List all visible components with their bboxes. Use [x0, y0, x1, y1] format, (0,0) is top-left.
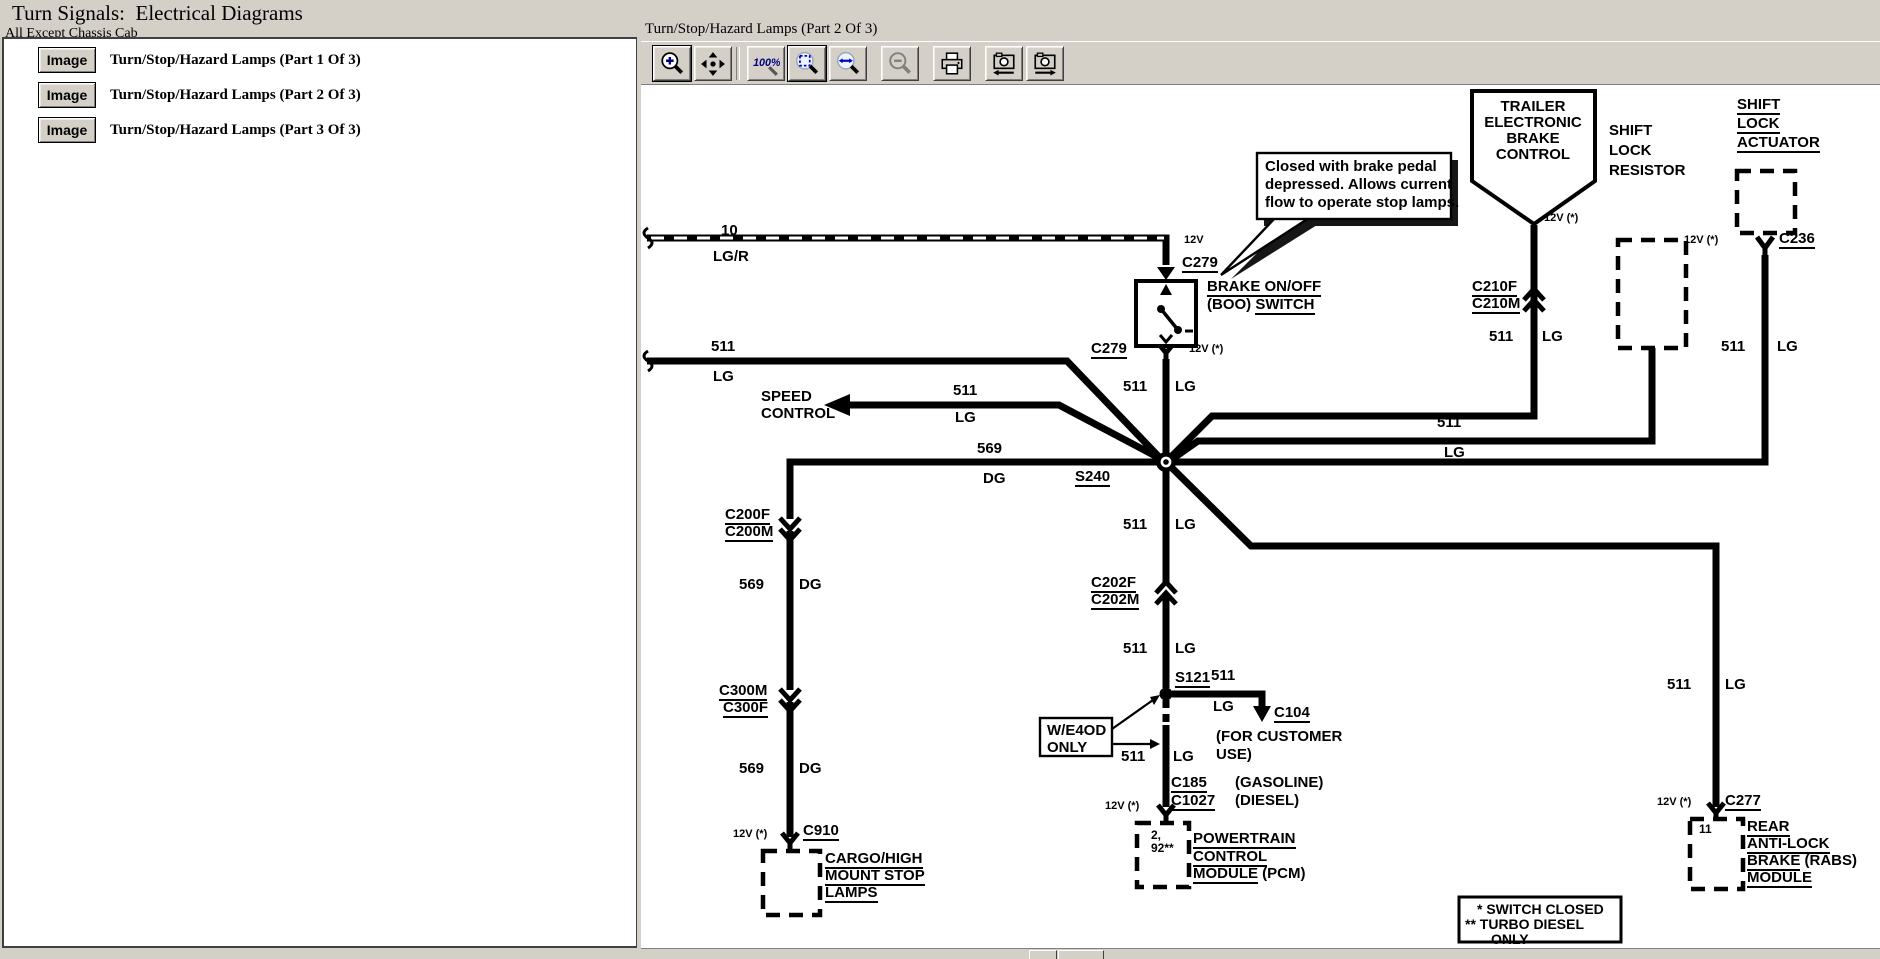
zoom-width-button[interactable]	[829, 46, 867, 81]
diagram-label: MOUNT STOP	[825, 868, 925, 884]
bottom-scrollbar[interactable]	[641, 948, 1880, 959]
diagram-label: C279	[1091, 341, 1127, 357]
diagram-label: 11	[1699, 823, 1712, 836]
diagram-label: LG	[1444, 445, 1465, 461]
diagram-label: S121	[1175, 670, 1210, 686]
camera-next-icon	[1032, 51, 1058, 77]
diagram-label: C200F	[725, 507, 770, 523]
zoom-out-icon	[887, 51, 913, 77]
diagram-label: MODULE	[1747, 870, 1812, 886]
diagram-label: 511	[1123, 517, 1147, 533]
diagram-label: LOCK	[1609, 143, 1652, 159]
diagram-label: USE)	[1216, 747, 1252, 763]
image-label-1: Turn/Stop/Hazard Lamps (Part 1 Of 3)	[110, 52, 361, 69]
viewer-toolbar: 100%	[641, 41, 1880, 85]
diagram-label: POWERTRAIN	[1193, 831, 1296, 847]
diagram-label: C200M	[725, 524, 773, 540]
diagram-label: LAMPS	[825, 885, 878, 901]
zoom-fit-icon	[794, 51, 820, 77]
diagram-label: RESISTOR	[1609, 163, 1685, 179]
diagram-label: CONTROL	[1193, 849, 1267, 865]
image-button-1[interactable]: Image	[38, 47, 96, 73]
diagram-label: REAR	[1747, 819, 1790, 835]
pan-icon	[700, 51, 726, 77]
diagram-label: 511	[1211, 668, 1235, 684]
page-title: Turn Signals: Electrical Diagrams	[12, 1, 303, 26]
diagram-label: CONTROL	[1496, 147, 1570, 163]
diagram-label: MODULE (PCM)	[1193, 866, 1306, 882]
diagram-label: 511	[711, 339, 735, 355]
diagram-label: SHIFT	[1737, 97, 1780, 113]
image-button-2[interactable]: Image	[38, 82, 96, 108]
diagram-label: LG	[1173, 749, 1194, 765]
diagram-label: C202M	[1091, 592, 1139, 608]
diagram-label: 12V (*)	[1684, 235, 1718, 247]
diagram-label: ANTI-LOCK	[1747, 836, 1830, 852]
diagram-label: 92**	[1151, 842, 1174, 855]
image-label-2: Turn/Stop/Hazard Lamps (Part 2 Of 3)	[110, 87, 361, 104]
diagram-label: C202F	[1091, 575, 1136, 591]
diagram-label: CARGO/HIGH	[825, 851, 923, 867]
zoom-width-icon	[835, 51, 861, 77]
zoom-100-button[interactable]: 100%	[747, 46, 785, 81]
diagram-label: ONLY	[1491, 932, 1529, 947]
diagram-label: CONTROL	[761, 406, 835, 422]
diagram-label: 511	[1721, 339, 1745, 355]
diagram-label: LG	[713, 369, 734, 385]
zoom-out-button[interactable]	[881, 46, 919, 81]
diagram-label: Closed with brake pedal	[1265, 159, 1437, 175]
diagram-label: 2,	[1151, 829, 1161, 842]
pan-button[interactable]	[694, 46, 732, 81]
camera-prev-icon	[991, 51, 1017, 77]
printer-icon	[939, 51, 965, 77]
diagram-label: 569	[739, 761, 764, 777]
diagram-label: LG	[1725, 677, 1746, 693]
svg-text:100%: 100%	[753, 57, 780, 69]
diagram-label: DG	[799, 577, 822, 593]
diagram-label: SHIFT	[1609, 123, 1652, 139]
diagram-label: 511	[1121, 749, 1145, 765]
diagram-label: C300F	[723, 700, 768, 716]
diagram-label: DG	[799, 761, 822, 777]
diagram-label: C210F	[1472, 279, 1517, 295]
diagram-label: * SWITCH CLOSED	[1477, 902, 1604, 917]
diagram-label: C910	[803, 823, 839, 839]
diagram-label: C236	[1779, 231, 1815, 247]
diagram-label: LG	[1175, 517, 1196, 533]
diagram-label: TRAILER	[1501, 99, 1566, 115]
diagram-label: DG	[983, 471, 1006, 487]
diagram-label: C1027	[1171, 793, 1215, 809]
diagram-label: LG	[1175, 641, 1196, 657]
zoom-in-button[interactable]	[653, 46, 691, 81]
app-window: Turn Signals: Electrical Diagrams All Ex…	[0, 0, 1880, 959]
diagram-title: Turn/Stop/Hazard Lamps (Part 2 Of 3)	[645, 21, 877, 38]
diagram-label: 12V (*)	[733, 829, 767, 841]
scrollbar-segment[interactable]	[1029, 950, 1057, 959]
zoom-fit-button[interactable]	[788, 46, 826, 81]
diagram-label: (BOO) SWITCH	[1207, 297, 1315, 313]
image-list-row: Image Turn/Stop/Hazard Lamps (Part 1 Of …	[4, 47, 361, 73]
diagram-label: 10	[721, 223, 738, 239]
diagram-label: BRAKE (RABS)	[1747, 853, 1857, 869]
toolbar-separator	[736, 47, 740, 80]
diagram-label: 12V	[1184, 235, 1204, 247]
diagram-label: LG	[1213, 699, 1234, 715]
diagram-label: C210M	[1472, 296, 1520, 312]
diagram-label-layer: 10LG/R12VC279BRAKE ON/OFF(BOO) SWITCHC27…	[641, 85, 1880, 949]
diagram-label: flow to operate stop lamps.	[1265, 195, 1459, 211]
diagram-label: C279	[1182, 255, 1218, 271]
diagram-label: 511	[1437, 415, 1461, 431]
image-button-3[interactable]: Image	[38, 117, 96, 143]
diagram-label: 12V (*)	[1105, 801, 1139, 813]
diagram-label: LG	[1542, 329, 1563, 345]
diagram-label: 12V (*)	[1657, 797, 1691, 809]
print-button[interactable]	[933, 46, 971, 81]
diagram-label: 12V (*)	[1544, 213, 1578, 225]
diagram-label: 569	[739, 577, 764, 593]
diagram-label: SPEED	[761, 389, 812, 405]
diagram-label: (FOR CUSTOMER	[1216, 729, 1342, 745]
diagram-label: 511	[1123, 379, 1147, 395]
diagram-label: (GASOLINE)	[1235, 775, 1323, 791]
diagram-label: S240	[1075, 469, 1110, 485]
diagram-label: depressed. Allows current	[1265, 177, 1452, 193]
diagram-label: LG/R	[713, 249, 749, 265]
diagram-label: (DIESEL)	[1235, 793, 1299, 809]
image-list-row: Image Turn/Stop/Hazard Lamps (Part 3 Of …	[4, 117, 361, 143]
diagram-label: 511	[953, 383, 977, 399]
diagram-label: ACTUATOR	[1737, 135, 1820, 151]
diagram-label: ** TURBO DIESEL	[1465, 917, 1584, 932]
diagram-label: LOCK	[1737, 116, 1780, 132]
diagram-label: ONLY	[1047, 740, 1087, 756]
diagram-label: C300M	[719, 683, 767, 699]
diagram-label: BRAKE ON/OFF	[1207, 279, 1321, 295]
wiring-diagram-canvas: 10LG/R12VC279BRAKE ON/OFF(BOO) SWITCHC27…	[641, 84, 1880, 949]
next-image-button[interactable]	[1026, 46, 1064, 81]
diagram-label: LG	[1777, 339, 1798, 355]
image-label-3: Turn/Stop/Hazard Lamps (Part 3 Of 3)	[110, 122, 361, 139]
scrollbar-thumb[interactable]	[1058, 950, 1104, 959]
diagram-label: 569	[977, 441, 1002, 457]
diagram-label: C185	[1171, 775, 1207, 791]
image-list-panel: Image Turn/Stop/Hazard Lamps (Part 1 Of …	[2, 37, 637, 948]
diagram-label: C104	[1274, 705, 1310, 721]
diagram-label: LG	[1175, 379, 1196, 395]
diagram-label: 511	[1123, 641, 1147, 657]
diagram-label: 511	[1489, 329, 1513, 345]
zoom-100-icon: 100%	[752, 51, 780, 77]
zoom-in-icon	[659, 51, 685, 77]
diagram-label: C277	[1725, 793, 1761, 809]
diagram-label: LG	[955, 410, 976, 426]
diagram-label: ELECTRONIC	[1484, 115, 1582, 131]
diagram-label: BRAKE	[1506, 131, 1559, 147]
diagram-label: W/E4OD	[1047, 723, 1106, 739]
image-list-row: Image Turn/Stop/Hazard Lamps (Part 2 Of …	[4, 82, 361, 108]
diagram-label: 12V (*)	[1189, 344, 1223, 356]
diagram-label: 511	[1667, 677, 1691, 693]
previous-image-button[interactable]	[985, 46, 1023, 81]
